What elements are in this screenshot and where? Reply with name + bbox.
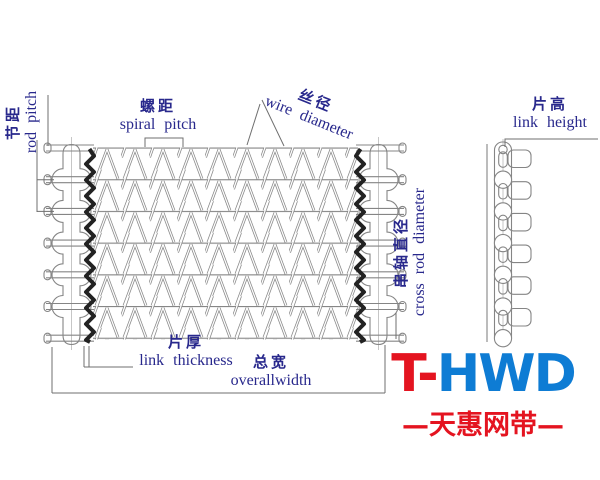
label-spiral-pitch-zh: 螺距 <box>97 99 219 116</box>
logo-text-red: T- <box>391 344 436 404</box>
label-rod-pitch-en: rod pitch <box>23 62 41 182</box>
label-rod-pitch: 节距 rod pitch <box>6 62 44 182</box>
label-spiral-pitch-en: spiral pitch <box>97 116 219 134</box>
belt-top-view <box>44 137 406 350</box>
label-cross-rod-diameter: 串轴直径 cross rod diameter <box>394 162 432 342</box>
label-rod-pitch-zh: 节距 <box>6 62 23 182</box>
label-cross-rod-diameter-zh: 串轴直径 <box>394 162 411 342</box>
label-overall-width-zh: 总宽 <box>208 355 334 372</box>
logo: T-HWD —天惠网带— <box>381 347 585 442</box>
logo-wordmark: T-HWD <box>381 347 585 402</box>
left-chain <box>44 137 94 350</box>
link-height-dimension <box>505 139 598 147</box>
logo-subtitle: —天惠网带— <box>381 403 585 442</box>
label-link-height-en: link height <box>489 114 600 132</box>
spiral-pitch-dimension <box>145 138 183 147</box>
mesh-weave <box>93 148 358 340</box>
label-link-height-zh: 片高 <box>489 97 600 114</box>
page: { "title": "spiral wire mesh belt dimens… <box>0 0 600 480</box>
label-spiral-pitch: 螺距 spiral pitch <box>97 99 219 134</box>
label-cross-rod-diameter-en: cross rod diameter <box>411 162 429 342</box>
label-link-thickness-zh: 片厚 <box>125 335 247 352</box>
logo-text-blue: HWD <box>437 344 575 404</box>
label-link-height: 片高 link height <box>489 97 600 132</box>
belt-side-view <box>487 139 531 347</box>
label-overall-width: 总宽 overallwidth <box>208 355 334 390</box>
label-overall-width-en: overallwidth <box>208 372 334 390</box>
